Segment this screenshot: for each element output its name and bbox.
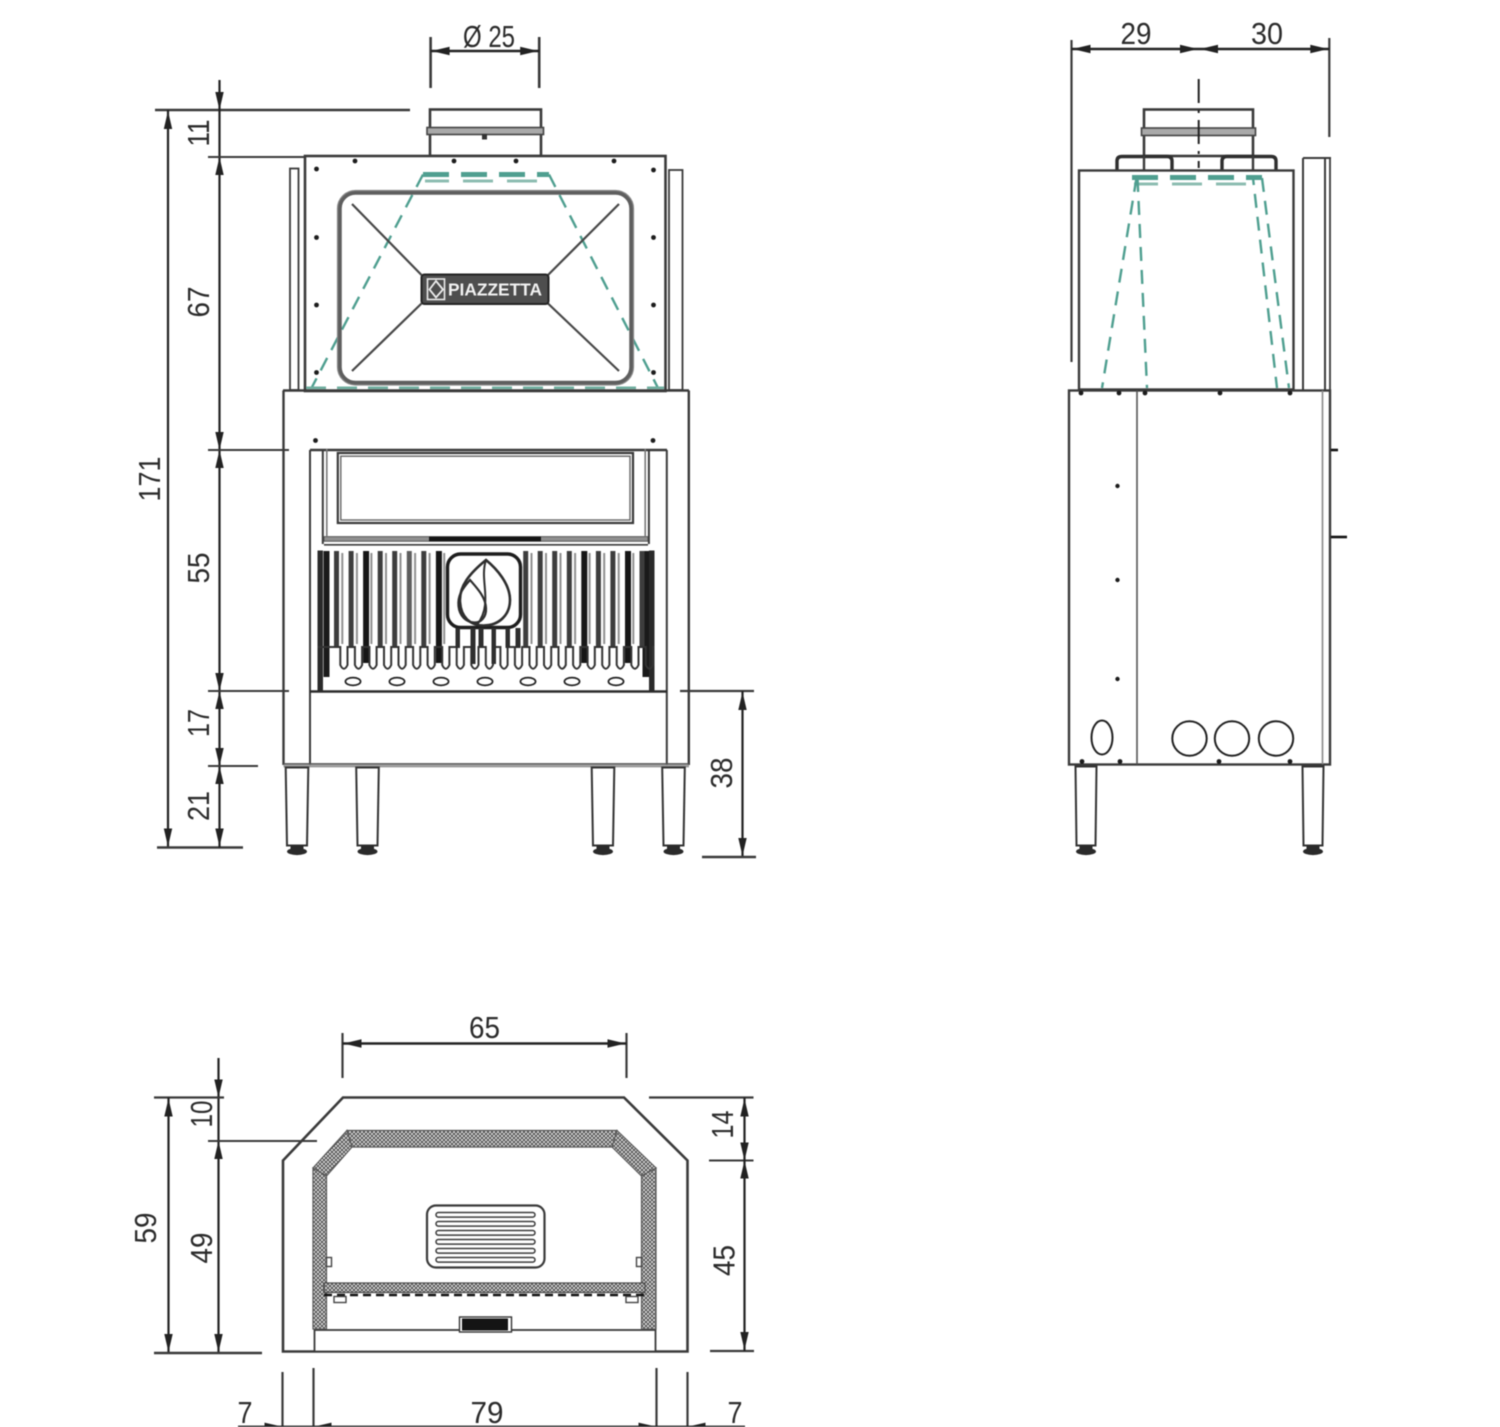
svg-text:38: 38 — [704, 758, 739, 789]
svg-text:59: 59 — [128, 1213, 163, 1244]
svg-text:11: 11 — [181, 120, 216, 147]
svg-text:65: 65 — [469, 1010, 500, 1045]
svg-text:PIAZZETTA: PIAZZETTA — [448, 280, 542, 300]
svg-text:55: 55 — [181, 553, 216, 584]
svg-text:17: 17 — [181, 709, 216, 737]
svg-text:7: 7 — [238, 1395, 253, 1427]
svg-text:79: 79 — [471, 1395, 504, 1427]
svg-text:21: 21 — [181, 791, 216, 821]
svg-text:10: 10 — [184, 1101, 219, 1128]
svg-text:67: 67 — [181, 287, 216, 318]
svg-text:49: 49 — [184, 1233, 219, 1264]
svg-text:45: 45 — [707, 1245, 742, 1276]
svg-text:Ø 25: Ø 25 — [463, 19, 515, 54]
svg-text:30: 30 — [1251, 16, 1283, 51]
svg-text:14: 14 — [705, 1111, 740, 1139]
svg-text:171: 171 — [132, 457, 167, 502]
svg-text:29: 29 — [1121, 16, 1152, 51]
svg-text:7: 7 — [728, 1395, 743, 1427]
